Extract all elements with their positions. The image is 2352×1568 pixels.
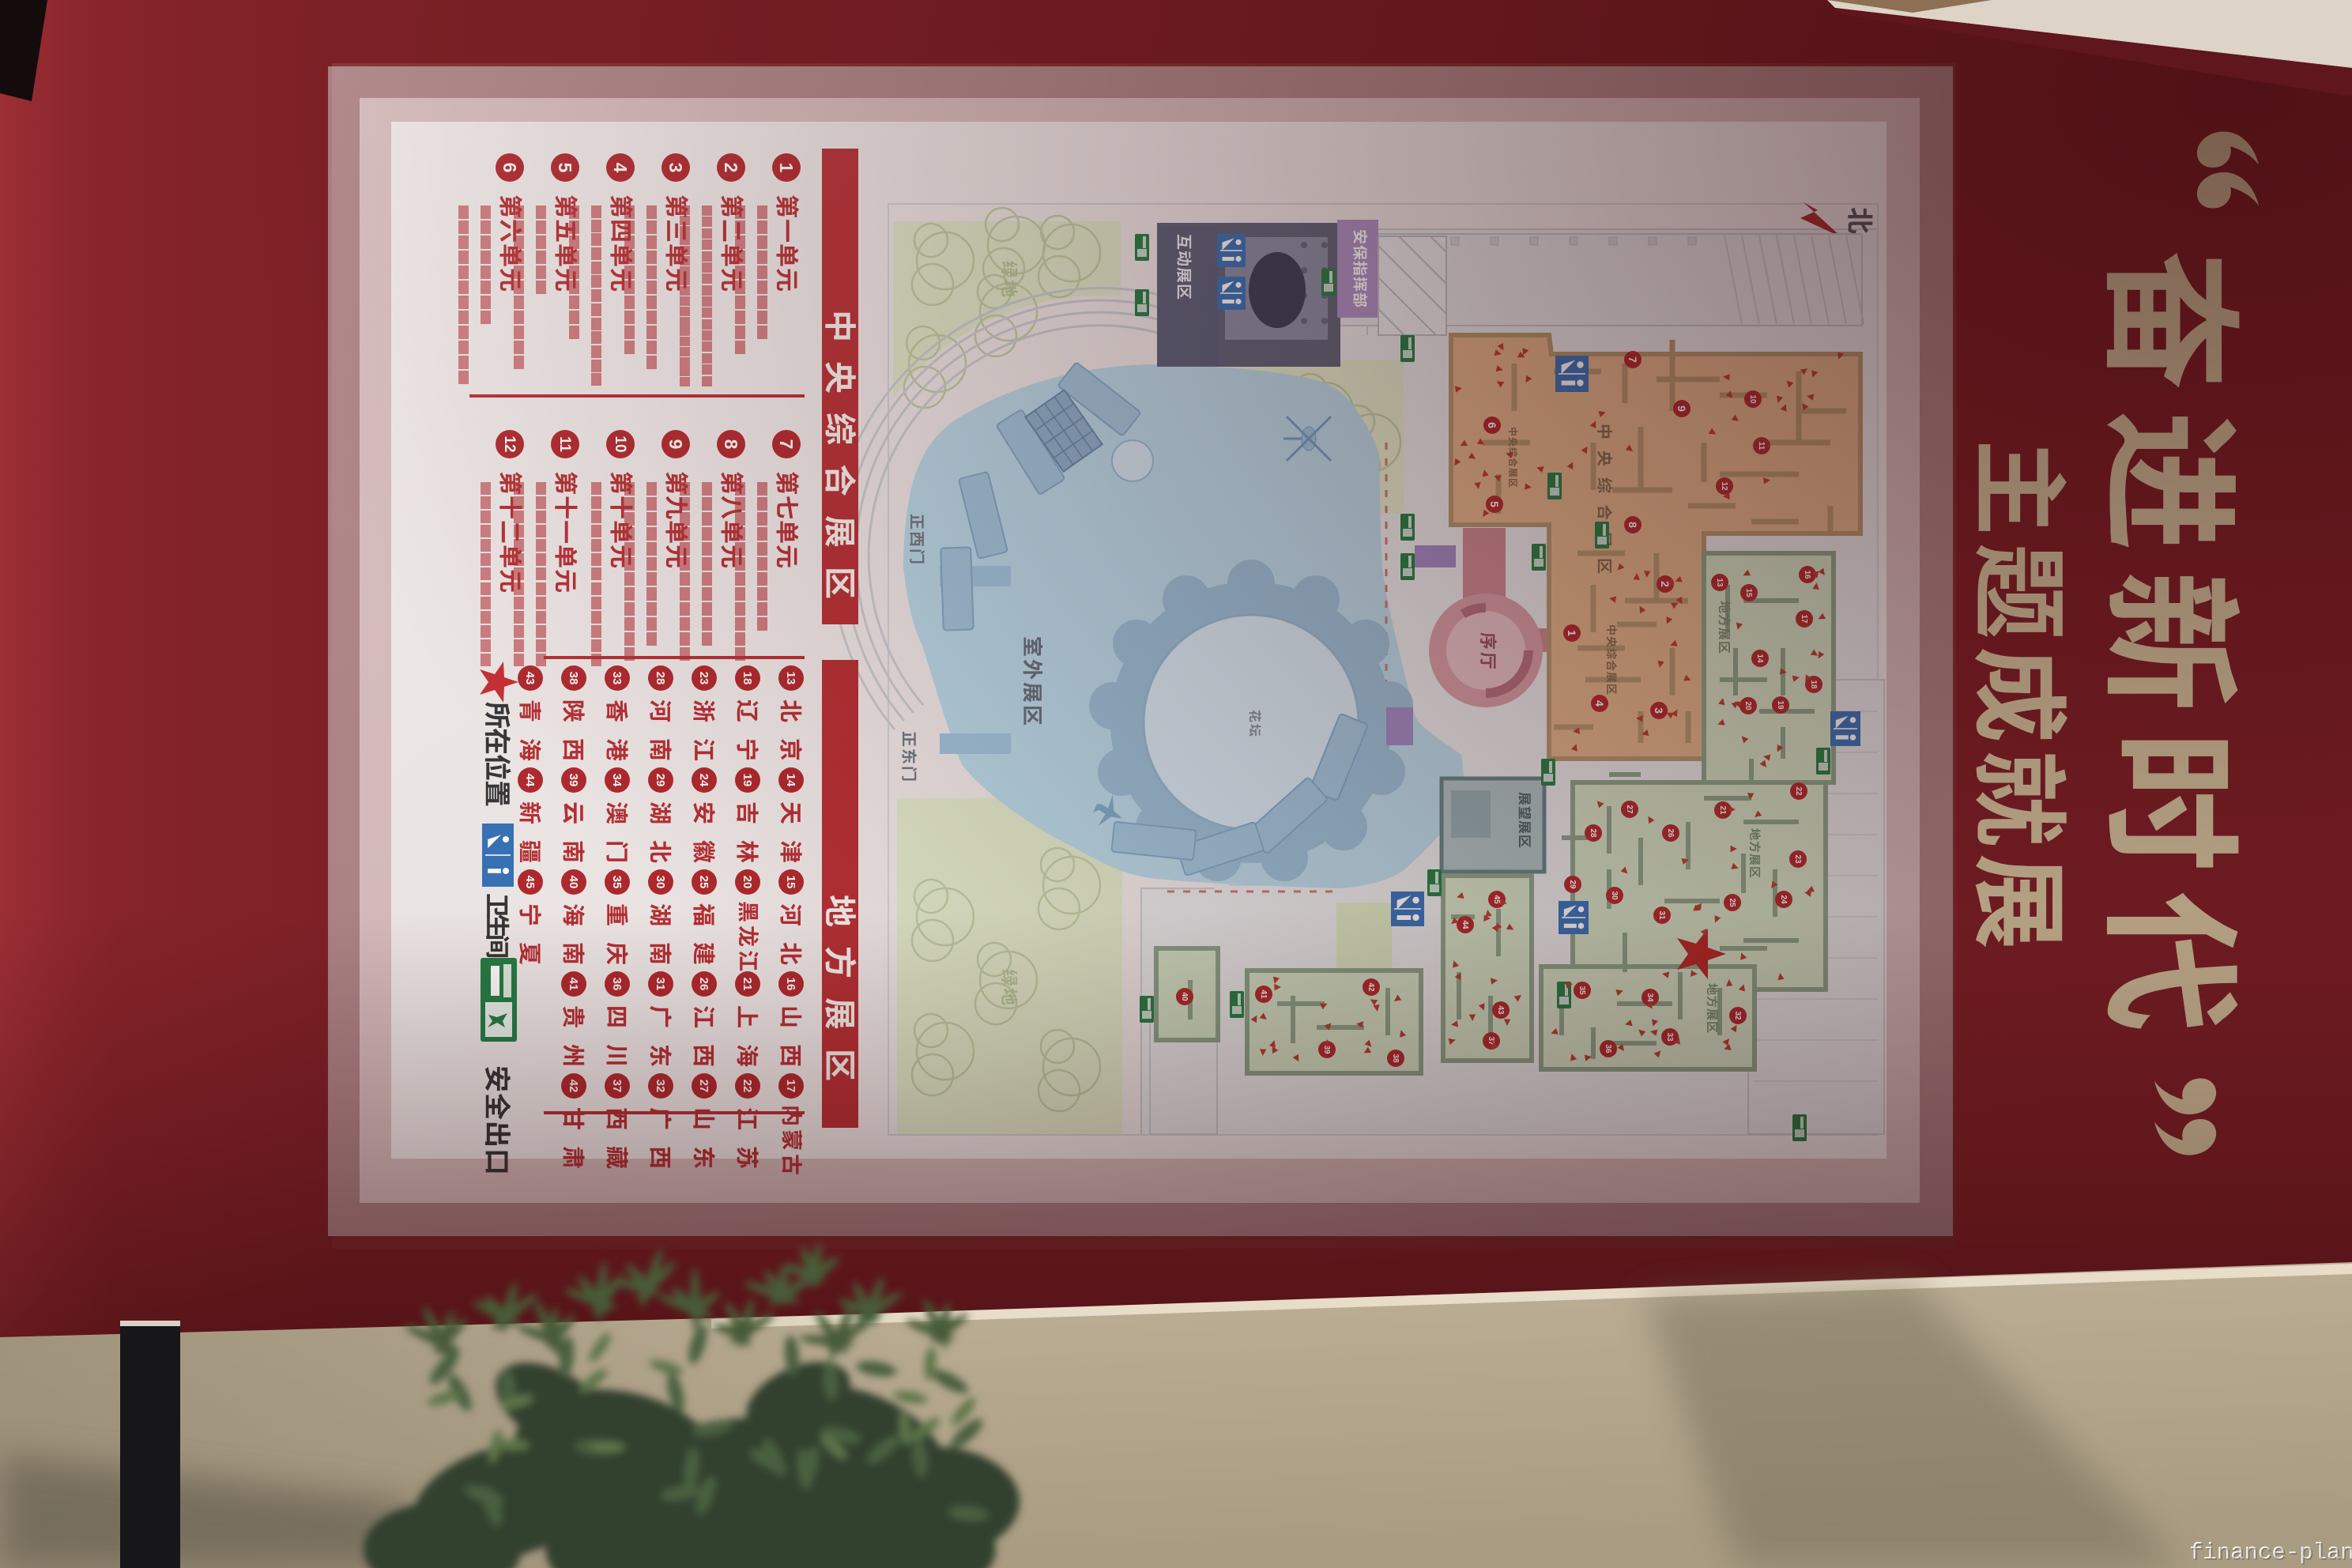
svg-text:finance-plans.com: finance-plans.com: [2191, 1541, 2352, 1567]
